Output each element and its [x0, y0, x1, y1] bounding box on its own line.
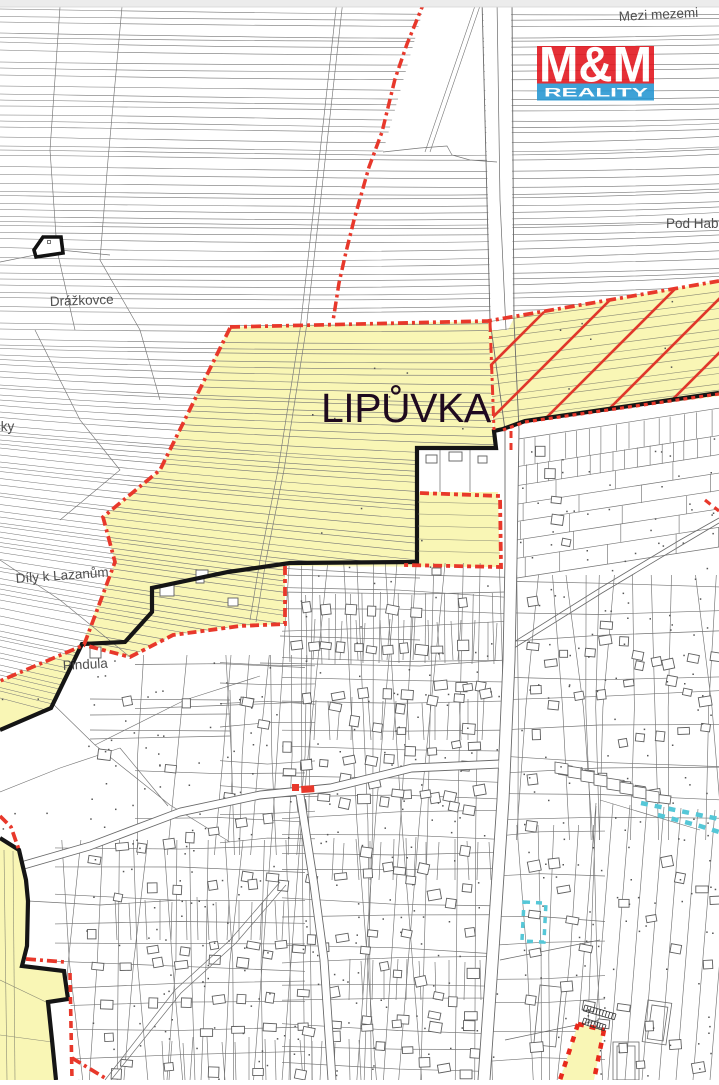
svg-text:LIPŮVKA: LIPŮVKA	[321, 384, 492, 431]
svg-text:Pod Hab: Pod Hab	[666, 216, 719, 231]
svg-text:Drážkovce: Drážkovce	[50, 292, 114, 309]
svg-text:Pindula: Pindula	[62, 656, 108, 673]
svg-text:sky: sky	[0, 419, 15, 434]
svg-text:M&M: M&M	[539, 37, 652, 93]
svg-text:REALITY: REALITY	[544, 86, 648, 100]
